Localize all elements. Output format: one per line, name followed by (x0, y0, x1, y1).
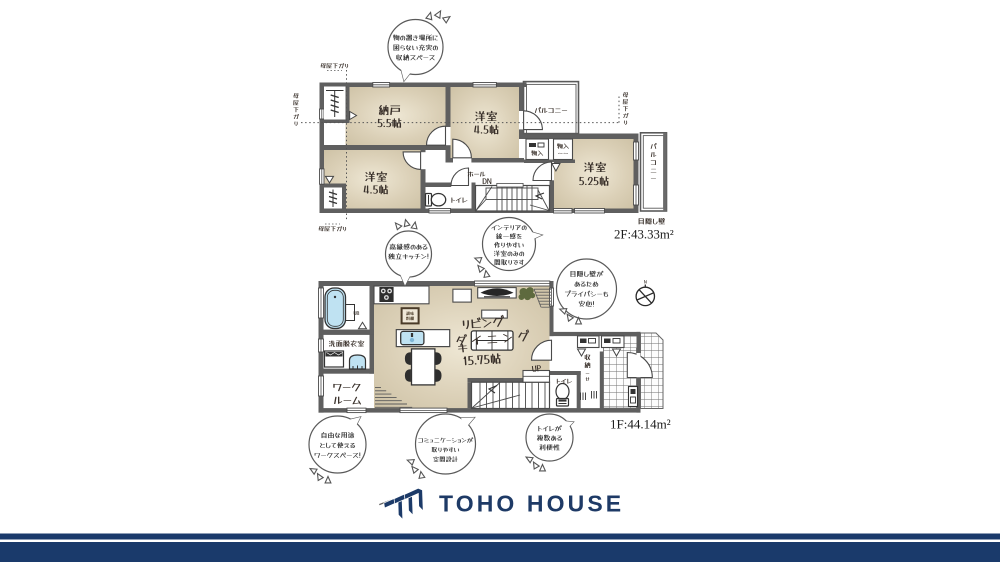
svg-text:1F:44.14m²: 1F:44.14m² (610, 417, 671, 432)
svg-text:TOHO HOUSE: TOHO HOUSE (439, 491, 624, 517)
svg-text:2F:43.33m²: 2F:43.33m² (614, 228, 674, 242)
